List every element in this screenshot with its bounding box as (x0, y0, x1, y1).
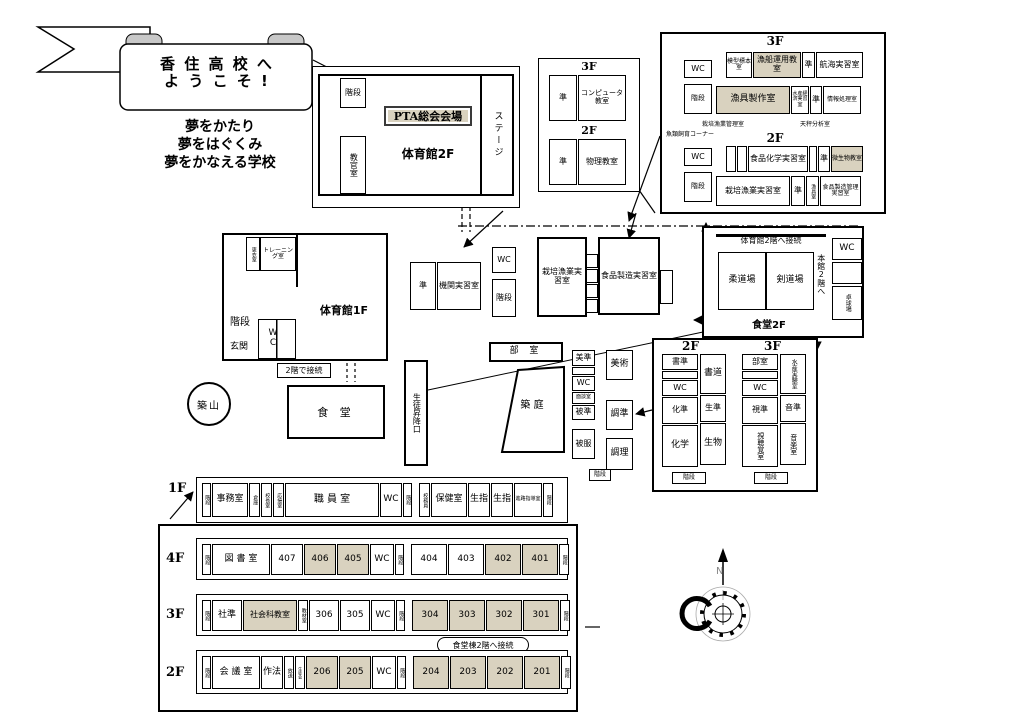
to-main-2f-label: 本館2階へ (816, 254, 825, 320)
room: 202 (487, 656, 523, 689)
room: 食品製造管理実習室 (820, 176, 861, 206)
building-cafeteria-1f: 食 堂 (287, 385, 385, 439)
room: 407 (271, 544, 303, 575)
room: 微生物教室 (831, 146, 863, 172)
compass-north-label: N (716, 566, 723, 577)
room: 406 (304, 544, 336, 575)
note-fish-corner: 魚類飼育コーナー (666, 132, 714, 139)
corridor-gap (413, 483, 418, 517)
room-judo: 柔道場 (718, 252, 766, 310)
room: 会 議 室 (212, 656, 260, 689)
room: 203 (450, 656, 486, 689)
entrance-label: 玄関 (230, 343, 248, 353)
room-wc: W C (258, 319, 296, 359)
annex-3f-rooms: 準コンピュータ教室 (549, 75, 626, 121)
room: 事務室 (212, 483, 248, 517)
room: WC (380, 483, 402, 517)
room: WC (371, 600, 395, 631)
room: 漁船運用教室 (753, 52, 801, 78)
building-gym-2f: 階段 教官室 PTA総会会場 体育館2F ステージ (318, 74, 514, 196)
building-cafeteria-2f: 体育館2階へ接続 柔道場 剣道場 本館2階へ WC 卓球場 食堂2F (702, 226, 864, 338)
note-balance-room: 天秤分析室 (800, 122, 830, 129)
annex-2f-rooms: 準物理教室 (549, 139, 626, 185)
floor-3f-rooms: 階段社準社会科教室教材室306305WC階段304303302301階段 (202, 600, 570, 631)
room-stairs: 階段 (672, 472, 706, 484)
room-blank (832, 262, 862, 284)
room: 保健室 (431, 483, 467, 517)
annex-3f-label: 3F (539, 61, 639, 73)
room: 階段 (560, 600, 570, 631)
room-wc: WC (492, 247, 516, 273)
room: 301 (523, 600, 559, 631)
gym-1f-label: 体育館1F (302, 305, 386, 317)
room: 被準 (572, 405, 595, 420)
room: 401 (522, 544, 558, 575)
room: 美準 (572, 350, 595, 366)
corridor-gap (572, 421, 595, 428)
room-pingpong: 卓球場 (832, 286, 862, 320)
art-right-column: 美術調準調理 (606, 350, 633, 470)
room-stairs: 階段 (492, 279, 516, 317)
room: 201 (524, 656, 560, 689)
room: 進路指導室 (514, 483, 542, 517)
sci-2f-label: 2F (682, 340, 699, 353)
sci-3f-label: 3F (764, 340, 781, 353)
connect-2f-note: 2階で接続 (277, 363, 331, 378)
room: WC (370, 544, 394, 575)
room: 化学 (662, 425, 698, 467)
room-cultivation-lab: 栽培漁業実習室 (537, 237, 587, 317)
room: 生指 (468, 483, 490, 517)
room: WC (662, 380, 698, 396)
gym-2f-label: 体育館2F (380, 148, 476, 161)
room-stairs: 階段 (684, 172, 712, 202)
campus-map: 香 住 高 校 へ よ う こ そ ! 夢をかたり 夢をはぐくみ 夢をかなえる学… (0, 0, 1024, 723)
room: 水産実験室 (780, 354, 806, 394)
room: 階段 (202, 544, 211, 575)
corridor-gap (406, 600, 411, 631)
room-wc: WC (684, 148, 712, 166)
room: 生物 (700, 423, 726, 465)
room: 栽培漁業実習室 (716, 176, 790, 206)
room: 階段 (403, 483, 412, 517)
room: 教材室 (298, 600, 308, 631)
room: 準 (791, 176, 805, 206)
room: 調理 (606, 438, 633, 470)
corridor-gap (405, 544, 410, 575)
room (586, 284, 598, 298)
room: 機関実習室 (437, 262, 481, 310)
room: 準 (810, 86, 822, 114)
room (662, 371, 698, 379)
room: 準 (802, 52, 815, 78)
room (586, 299, 598, 313)
room: 調準 (606, 400, 633, 430)
floor-2f-label: 2F (166, 666, 184, 680)
fisheries-3f-row-b: 漁具製作室水産経済実習室準情報処理室 (716, 86, 861, 114)
room: 化準 (662, 397, 698, 424)
room: 階段 (559, 544, 569, 575)
room: 準 (818, 146, 830, 172)
room (737, 146, 747, 172)
room: 階段 (396, 600, 405, 631)
room: 食品化学実習室 (748, 146, 808, 172)
small-cells (586, 254, 598, 313)
gym2-connect-label: 体育館2階へ接続 (716, 234, 826, 246)
room: 階段 (202, 656, 211, 689)
building-fisheries: 3F WC 階段 模型標本室漁船運用教室準航海実習室 漁具製作室水産経済実習室準… (660, 32, 886, 214)
slogan-line: 夢をかたり (140, 118, 300, 136)
building-gym-1f: 更衣室 トレーニング室 階段 玄関 W C 体育館1F (222, 233, 388, 361)
room-instructor: 教官室 (340, 136, 366, 194)
floor-1f-rooms: 階段事務室倉庫校長室応接室職 員 室WC階段校務員保健室生指生指進路指導室階段 (202, 483, 553, 517)
fisheries-2f-label: 2F (752, 132, 798, 145)
room: 402 (485, 544, 521, 575)
room: 被服 (572, 429, 595, 459)
room: 模型標本室 (726, 52, 752, 78)
room (742, 371, 778, 379)
corridor-gap (606, 431, 633, 437)
cafeteria-2f-label: 食堂2F (734, 320, 804, 331)
room: WC (372, 656, 396, 689)
banner-line1: 香 住 高 校 へ (124, 56, 310, 73)
room: 面談室 (572, 392, 595, 404)
room: 準 (549, 75, 577, 121)
sci-2f-right: 書道生準生物 (700, 354, 726, 465)
corridor-gap (606, 381, 633, 399)
room: 美術 (606, 350, 633, 380)
room-clubrooms: 部 室 (489, 342, 563, 362)
floor-4f-label: 4F (166, 552, 184, 566)
room: 205 (339, 656, 371, 689)
room: 図 書 室 (212, 544, 270, 575)
room: 階段 (561, 656, 571, 689)
room: WC (572, 376, 595, 391)
room-wc: WC (832, 238, 862, 260)
room: 302 (486, 600, 522, 631)
room: 305 (340, 600, 370, 631)
room: 校務員 (419, 483, 430, 517)
room-annex-cell (660, 270, 673, 304)
room: 準 (410, 262, 436, 310)
room: 漁具室 (806, 176, 819, 206)
pta-meeting-hall: PTA総会会場 (384, 106, 472, 126)
courtyard-label: 築 庭 (510, 400, 554, 411)
room: 放送 (284, 656, 294, 689)
inner-wall (296, 235, 298, 287)
room-locker: 更衣室 (246, 237, 260, 271)
room: 403 (448, 544, 484, 575)
room: 音楽室 (780, 423, 806, 465)
room-stairs: 階段 (589, 469, 611, 481)
room: 生指 (491, 483, 513, 517)
building-science: 2F 3F 書準WC化準化学 書道生準生物 部室WC視準視聴覚室 水産実験室音準… (652, 338, 818, 492)
room: 倉庫 (249, 483, 260, 517)
room-stairs: 階段 (754, 472, 788, 484)
room (809, 146, 817, 172)
corridor-gap (407, 656, 412, 689)
room: 情報処理室 (823, 86, 861, 114)
room: 準 (549, 139, 577, 185)
room (572, 367, 595, 375)
room (726, 146, 736, 172)
room: 部室 (742, 354, 778, 370)
room: 生準 (700, 395, 726, 422)
room: 作法 (261, 656, 283, 689)
room-wc: WC (684, 60, 712, 78)
art-left-column: 美準WC面談室被準被服 (572, 350, 595, 459)
room: 視準 (742, 397, 778, 424)
building-annex: 3F 準コンピュータ教室 2F 準物理教室 (538, 58, 640, 192)
fisheries-2f-row-d: 栽培漁業実習室準漁具室食品製造管理実習室 (716, 176, 861, 206)
sci-3f-right: 水産実験室音準音楽室 (780, 354, 806, 465)
student-entrance-hall: 生徒昇降口 (404, 360, 428, 466)
room: 204 (413, 656, 449, 689)
room: 404 (411, 544, 447, 575)
floor-4f-rooms: 階段図 書 室407406405WC階段404403402401階段 (202, 544, 569, 575)
floor-2f-rooms: 階段会 議 室作法放送生徒会206205WC階段204203202201階段 (202, 656, 571, 689)
room-stairs: 階段 (340, 78, 366, 108)
note-cultivation-office: 栽培漁業管理室 (702, 122, 744, 129)
machine-rooms: 準機関実習室 (410, 262, 481, 310)
floor-3f-label: 3F (166, 608, 184, 622)
room: 漁具製作室 (716, 86, 790, 114)
room: 206 (306, 656, 338, 689)
slogan-line: 夢をはぐくみ (140, 136, 300, 154)
slogan-line: 夢をかなえる学校 (140, 154, 300, 172)
room: 視聴覚室 (742, 425, 778, 467)
room: 書準 (662, 354, 698, 370)
banner-line2: よ う こ そ ! (124, 73, 310, 90)
room-stage: ステージ (480, 76, 514, 194)
fisheries-2f-row-c: 食品化学実習室準微生物教室 (726, 146, 863, 172)
room: 水産経済実習室 (791, 86, 809, 114)
fisheries-3f-label: 3F (662, 35, 888, 48)
room: 職 員 室 (285, 483, 379, 517)
room-food-production-lab: 食品製造実習室 (598, 237, 660, 315)
room (586, 269, 598, 283)
sci-2f-left: 書準WC化準化学 (662, 354, 698, 467)
room: 303 (449, 600, 485, 631)
room-stairs: 階段 (684, 84, 712, 114)
room: 書道 (700, 354, 726, 394)
welcome-banner: 香 住 高 校 へ よ う こ そ ! (124, 56, 310, 89)
room: 応接室 (273, 483, 284, 517)
room: 音準 (780, 395, 806, 422)
compass-rose (682, 548, 750, 641)
annex-2f-label: 2F (539, 125, 639, 137)
room: 304 (412, 600, 448, 631)
room: 校長室 (261, 483, 272, 517)
garden-mound: 築山 (187, 382, 231, 426)
room-kendo: 剣道場 (766, 252, 814, 310)
room: 405 (337, 544, 369, 575)
fisheries-3f-row-a: 模型標本室漁船運用教室準航海実習室 (726, 52, 863, 78)
floor-1f-label: 1F (168, 482, 186, 496)
room-training: トレーニング室 (260, 237, 296, 271)
room: 生徒会 (295, 656, 305, 689)
sci-3f-left: 部室WC視準視聴覚室 (742, 354, 778, 467)
room: 物理教室 (578, 139, 626, 185)
room: 階段 (395, 544, 404, 575)
room: 階段 (202, 600, 211, 631)
room: 航海実習室 (816, 52, 863, 78)
room: 階段 (202, 483, 211, 517)
stairs-label: 階段 (230, 317, 250, 328)
room: 306 (309, 600, 339, 631)
room: 階段 (397, 656, 406, 689)
room: 社準 (212, 600, 242, 631)
room: WC (742, 380, 778, 396)
school-slogan: 夢をかたり 夢をはぐくみ 夢をかなえる学校 (140, 118, 300, 173)
room: コンピュータ教室 (578, 75, 626, 121)
room: 社会科教室 (243, 600, 297, 631)
room: 階段 (543, 483, 553, 517)
room (586, 254, 598, 268)
